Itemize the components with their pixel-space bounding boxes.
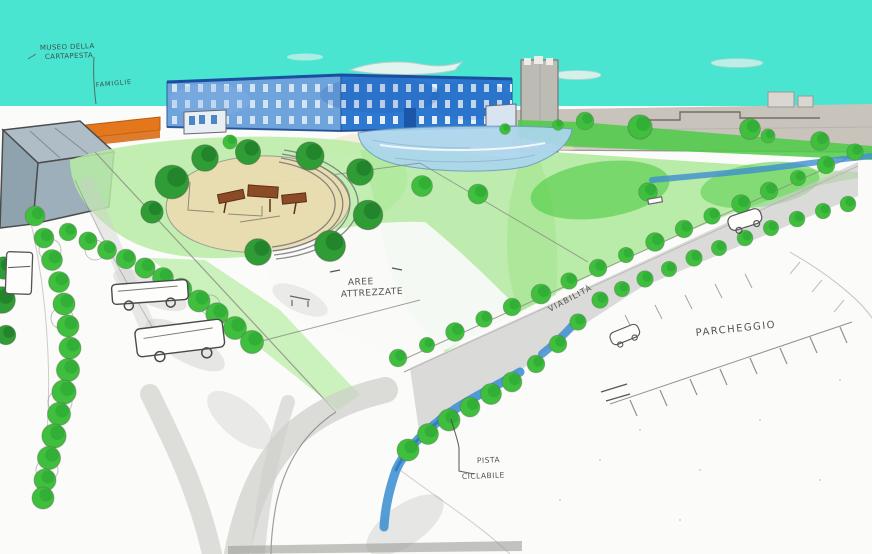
tree: [155, 165, 189, 199]
tree: [47, 402, 70, 425]
tree: [389, 349, 407, 367]
tree: [646, 233, 665, 252]
tree: [32, 487, 54, 509]
tree: [476, 311, 493, 328]
tree: [446, 323, 465, 342]
tree: [438, 409, 460, 431]
tree: [592, 292, 609, 309]
tree: [116, 249, 136, 269]
tree: [397, 439, 419, 461]
tree: [240, 330, 263, 353]
tree: [614, 281, 629, 296]
tree: [531, 284, 551, 304]
tree: [141, 201, 163, 223]
bike-path-label-line2: CICLABILE: [462, 471, 505, 481]
tree: [840, 196, 856, 212]
tree: [637, 271, 654, 288]
tree: [235, 139, 260, 164]
tree: [59, 337, 81, 359]
truck-sketch: [5, 252, 32, 295]
tree: [49, 272, 70, 293]
tree: [553, 120, 564, 131]
tree: [737, 230, 753, 246]
tree: [37, 446, 60, 469]
tree: [815, 203, 830, 218]
tree: [481, 384, 502, 405]
tree: [675, 220, 693, 238]
tree: [42, 250, 63, 271]
tree: [25, 206, 45, 226]
tree: [59, 223, 77, 241]
tree: [628, 115, 652, 139]
tree: [347, 159, 374, 186]
tree: [34, 228, 54, 248]
tree: [353, 200, 382, 229]
masterplan-sketch: MUSEO DELLA CARTAPESTA FAMIGLIE AREE ATT…: [0, 0, 872, 554]
tree: [686, 250, 703, 267]
museum-label-line2: CARTAPESTA: [45, 51, 93, 61]
tree: [740, 119, 761, 140]
tree: [42, 424, 66, 448]
tree: [761, 129, 775, 143]
tree: [789, 211, 805, 227]
tree: [0, 325, 16, 345]
tree: [223, 135, 237, 149]
tree: [503, 298, 521, 316]
tree: [315, 231, 346, 262]
tree: [817, 156, 835, 174]
tree: [527, 355, 545, 373]
tree: [502, 372, 522, 392]
tree: [618, 247, 633, 262]
tree: [52, 380, 76, 404]
tree: [500, 124, 511, 135]
tree: [549, 335, 567, 353]
tree: [460, 397, 480, 417]
tree: [57, 315, 79, 337]
tree: [296, 142, 324, 170]
tree: [53, 293, 75, 315]
tree: [192, 145, 219, 172]
historic-building: [167, 75, 516, 134]
tree: [561, 273, 578, 290]
tree: [79, 232, 97, 250]
tree: [711, 240, 726, 255]
tree: [56, 358, 79, 381]
tree: [704, 208, 721, 225]
tree: [811, 132, 830, 151]
tree: [760, 182, 778, 200]
tree: [790, 170, 805, 185]
tree: [847, 144, 864, 161]
tree: [245, 239, 272, 266]
tree: [468, 184, 488, 204]
equipped-areas-label-line1: AREE: [348, 277, 374, 288]
tree: [418, 424, 439, 445]
sketch-drawing: MUSEO DELLA CARTAPESTA FAMIGLIE AREE ATT…: [0, 0, 872, 554]
tree: [135, 258, 155, 278]
tree: [763, 220, 778, 235]
tree: [570, 314, 587, 331]
tree: [661, 261, 676, 276]
tree: [419, 337, 434, 352]
tree: [412, 176, 433, 197]
bike-path-label-line1: PISTA: [477, 455, 501, 465]
tree: [98, 241, 117, 260]
tree: [589, 259, 607, 277]
tree: [576, 112, 594, 130]
